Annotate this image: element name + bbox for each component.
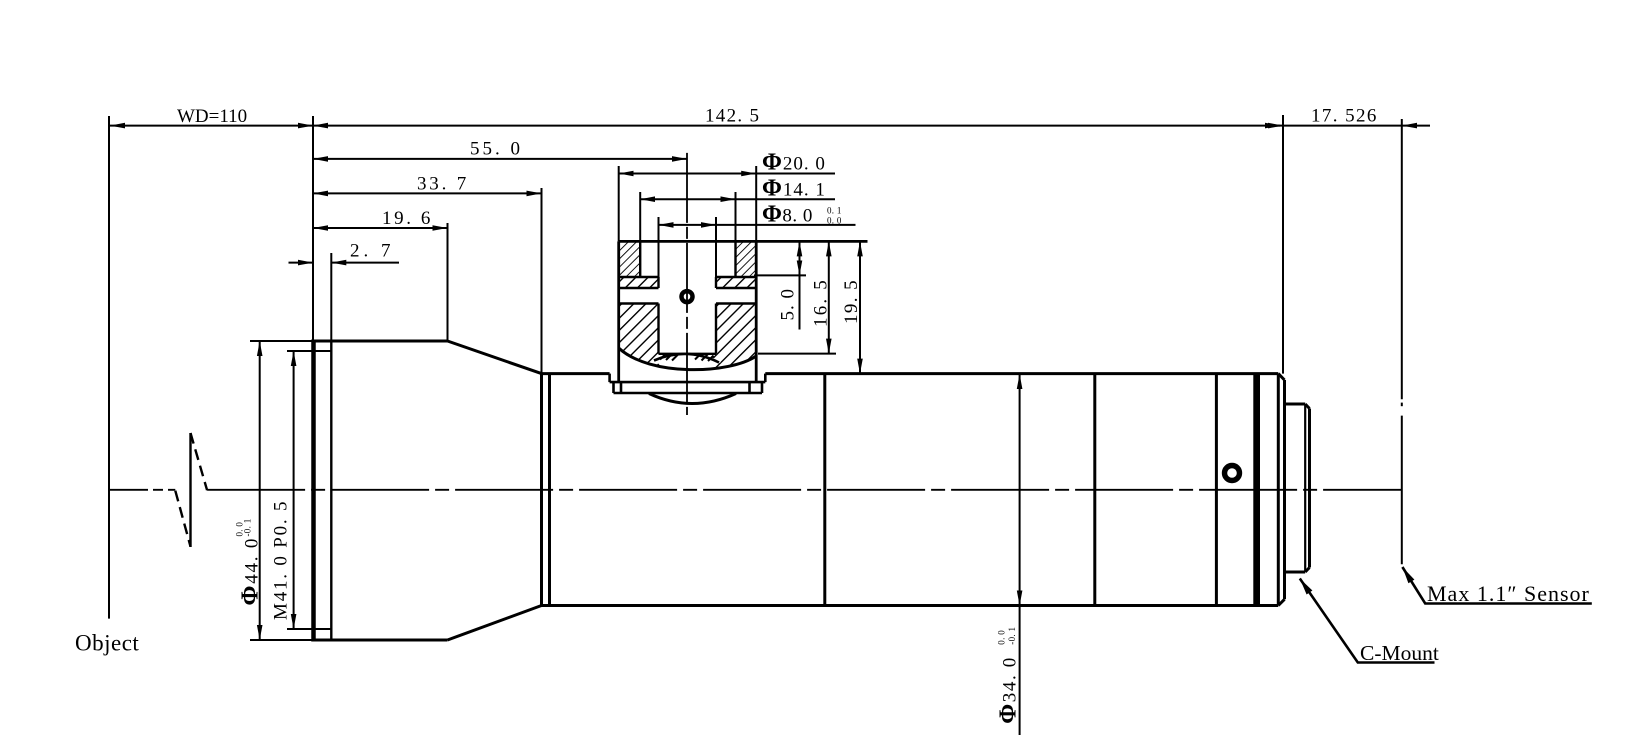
svg-text:33. 7: 33. 7 [417, 174, 469, 195]
svg-text:5. 0: 5. 0 [778, 288, 799, 321]
svg-text:0. 0: 0. 0 [997, 630, 1007, 645]
svg-text:Φ44. 0: Φ44. 0 [238, 537, 264, 606]
svg-text:Φ20. 0: Φ20. 0 [762, 150, 826, 176]
svg-text:19. 5: 19. 5 [841, 279, 862, 324]
svg-text:WD=110: WD=110 [177, 106, 247, 127]
svg-text:-0. 1: -0. 1 [1007, 627, 1017, 645]
svg-text:0. 1: 0. 1 [827, 206, 842, 216]
svg-text:2. 7: 2. 7 [350, 241, 395, 262]
svg-text:Φ34. 0: Φ34. 0 [996, 656, 1022, 724]
svg-text:Max 1.1″ Sensor: Max 1.1″ Sensor [1427, 581, 1590, 606]
svg-text:M41. 0 P0. 5: M41. 0 P0. 5 [271, 500, 292, 620]
svg-text:17. 526: 17. 526 [1311, 106, 1378, 127]
svg-text:Φ8. 0: Φ8. 0 [762, 202, 813, 228]
svg-text:Object: Object [75, 631, 139, 656]
svg-text:16. 5: 16. 5 [811, 278, 832, 327]
svg-text:19. 6: 19. 6 [382, 208, 433, 229]
svg-text:0. 0: 0. 0 [827, 216, 842, 226]
svg-text:-0. 1: -0. 1 [243, 519, 253, 537]
svg-text:55. 0: 55. 0 [470, 139, 523, 160]
svg-text:Φ14. 1: Φ14. 1 [762, 176, 826, 202]
svg-text:C-Mount: C-Mount [1360, 641, 1439, 665]
svg-text:142. 5: 142. 5 [705, 106, 760, 127]
